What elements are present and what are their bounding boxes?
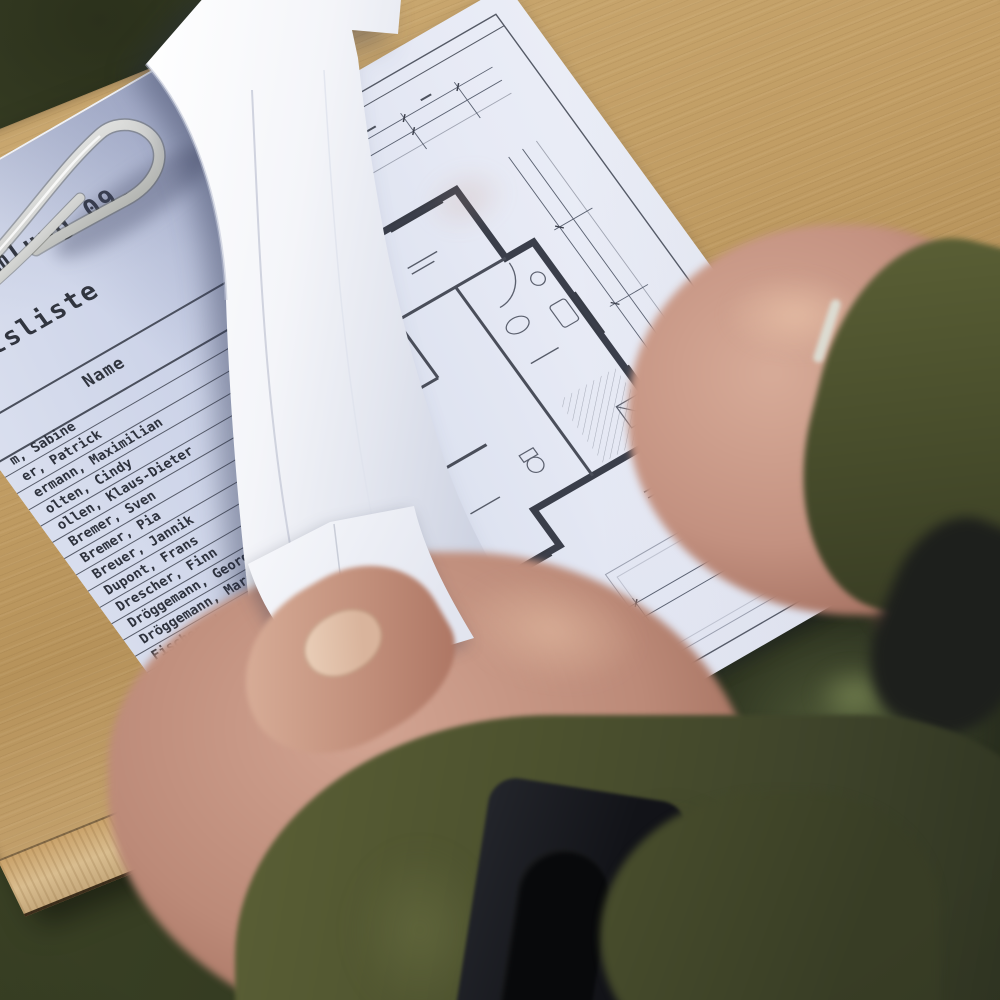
photo-construction-clipboard: Bauherr bbox=[0, 0, 1000, 1000]
strap-slot bbox=[493, 842, 615, 1000]
